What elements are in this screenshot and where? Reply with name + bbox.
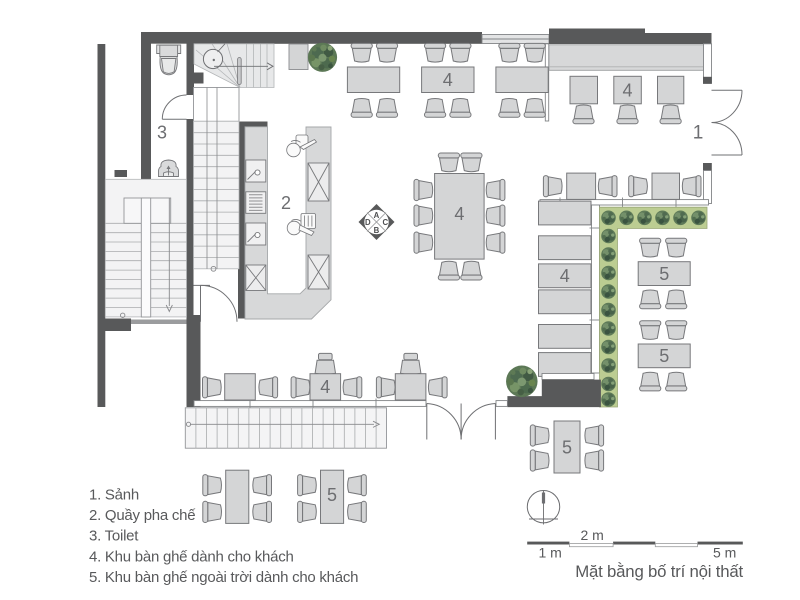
svg-text:2: 2 [281, 193, 291, 213]
svg-text:4: 4 [560, 266, 570, 286]
svg-text:3. Toilet: 3. Toilet [89, 528, 139, 545]
svg-text:C: C [382, 218, 388, 227]
svg-text:1: 1 [693, 123, 704, 144]
svg-text:2 m: 2 m [581, 527, 604, 543]
svg-text:5. Khu bàn ghế ngoài trời dành: 5. Khu bàn ghế ngoài trời dành cho khách [89, 569, 358, 586]
svg-text:5: 5 [659, 264, 669, 284]
svg-text:4. Khu bàn ghế dành cho khách: 4. Khu bàn ghế dành cho khách [89, 548, 294, 565]
svg-text:1 m: 1 m [539, 544, 562, 560]
svg-text:2. Quầy pha chế: 2. Quầy pha chế [89, 507, 196, 524]
svg-text:Mặt bằng bố trí nội thất: Mặt bằng bố trí nội thất [575, 562, 743, 581]
svg-text:5: 5 [659, 346, 669, 366]
svg-text:B: B [374, 226, 380, 235]
svg-text:3: 3 [157, 123, 167, 143]
svg-text:4: 4 [454, 204, 464, 224]
svg-text:5: 5 [562, 437, 572, 457]
svg-text:4: 4 [320, 377, 330, 397]
svg-text:D: D [365, 218, 371, 227]
svg-text:A: A [374, 211, 380, 220]
svg-text:4: 4 [443, 70, 453, 90]
svg-text:1. Sảnh: 1. Sảnh [89, 487, 139, 504]
svg-text:5 m: 5 m [713, 544, 736, 560]
svg-text:4: 4 [623, 80, 633, 100]
svg-text:5: 5 [327, 485, 337, 505]
